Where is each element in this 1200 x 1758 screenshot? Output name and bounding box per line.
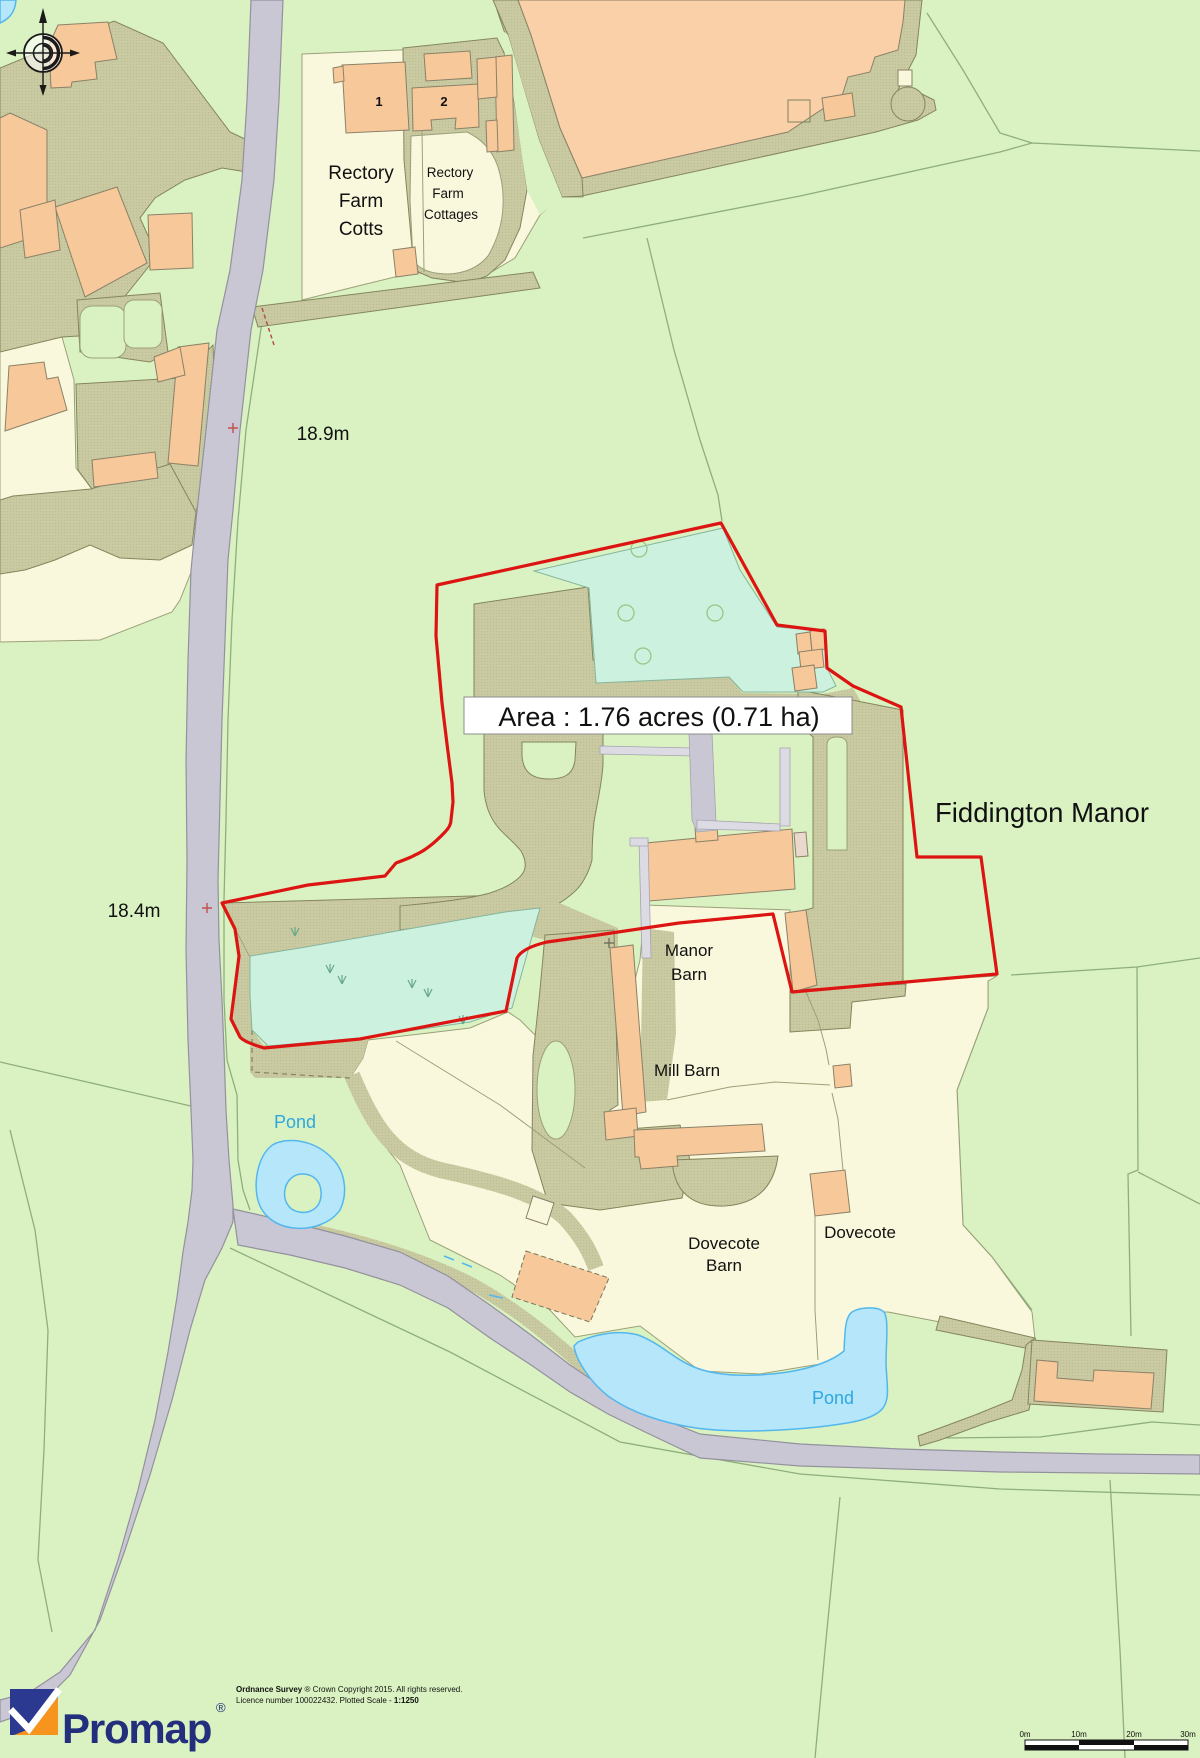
svg-text:1: 1: [375, 94, 382, 109]
svg-text:Mill Barn: Mill Barn: [654, 1061, 720, 1080]
svg-text:Barn: Barn: [671, 965, 707, 984]
svg-text:Barn: Barn: [706, 1256, 742, 1275]
svg-text:Rectory: Rectory: [328, 163, 394, 184]
svg-text:Area : 1.76 acres (0.71 ha): Area : 1.76 acres (0.71 ha): [498, 702, 819, 732]
svg-text:Fiddington Manor: Fiddington Manor: [935, 797, 1149, 828]
svg-text:30m: 30m: [1180, 1730, 1196, 1739]
svg-text:Promap: Promap: [62, 1705, 211, 1752]
svg-text:Dovecote: Dovecote: [824, 1223, 896, 1242]
svg-text:Farm: Farm: [339, 191, 383, 212]
svg-text:Cottages: Cottages: [424, 207, 478, 222]
svg-text:®: ®: [216, 1700, 226, 1715]
svg-text:Farm: Farm: [432, 186, 464, 201]
svg-text:Licence number 100022432. Plot: Licence number 100022432. Plotted Scale …: [236, 1696, 419, 1705]
svg-text:18.4m: 18.4m: [108, 901, 161, 922]
svg-text:Dovecote: Dovecote: [688, 1234, 760, 1253]
svg-text:20m: 20m: [1126, 1730, 1142, 1739]
svg-text:Manor: Manor: [665, 941, 714, 960]
svg-text:Ordnance Survey ® Crown Copyri: Ordnance Survey ® Crown Copyright 2015. …: [236, 1685, 462, 1694]
svg-text:2: 2: [440, 94, 447, 109]
svg-text:10m: 10m: [1071, 1730, 1087, 1739]
svg-text:Cotts: Cotts: [339, 219, 383, 240]
svg-text:0m: 0m: [1019, 1730, 1030, 1739]
svg-text:Pond: Pond: [812, 1388, 854, 1408]
svg-text:Pond: Pond: [274, 1112, 316, 1132]
svg-text:Rectory: Rectory: [427, 165, 474, 180]
svg-text:18.9m: 18.9m: [297, 424, 350, 445]
